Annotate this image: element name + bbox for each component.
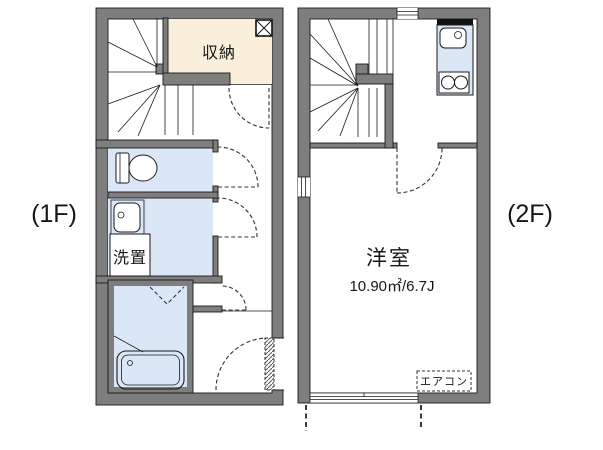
laundry-space: 洗置 bbox=[110, 234, 150, 276]
window-bottom bbox=[310, 393, 418, 403]
stove-icon bbox=[439, 72, 469, 93]
window-left bbox=[298, 177, 310, 197]
bathroom bbox=[114, 286, 187, 387]
kitchen-backsplash bbox=[437, 19, 473, 25]
sink-icon bbox=[111, 200, 144, 235]
floor2-label: (2F) bbox=[507, 200, 553, 228]
western-room-area-label: 10.90㎡/6.7J bbox=[349, 278, 434, 295]
window-top bbox=[397, 8, 418, 19]
floor-plan-drawing: 洗置 bbox=[0, 0, 603, 450]
toilet-icon bbox=[116, 153, 157, 183]
aircon-box: エアコン bbox=[417, 371, 471, 391]
floor-2f: エアコン 洋室 10.90㎡/6.7J bbox=[298, 8, 490, 431]
western-room-label: 洋室 bbox=[366, 247, 412, 270]
floor-plan-canvas: 洗置 bbox=[0, 0, 603, 450]
floor1-label: (1F) bbox=[31, 200, 77, 228]
storage-label: 収納 bbox=[202, 44, 236, 62]
laundry-label: 洗置 bbox=[113, 249, 147, 267]
floor-1f: 洗置 bbox=[96, 8, 284, 405]
kitchen-sink-icon bbox=[440, 28, 466, 48]
pipe-space-icon bbox=[256, 20, 272, 36]
kitchen-unit bbox=[437, 19, 473, 95]
aircon-label: エアコン bbox=[420, 376, 468, 388]
